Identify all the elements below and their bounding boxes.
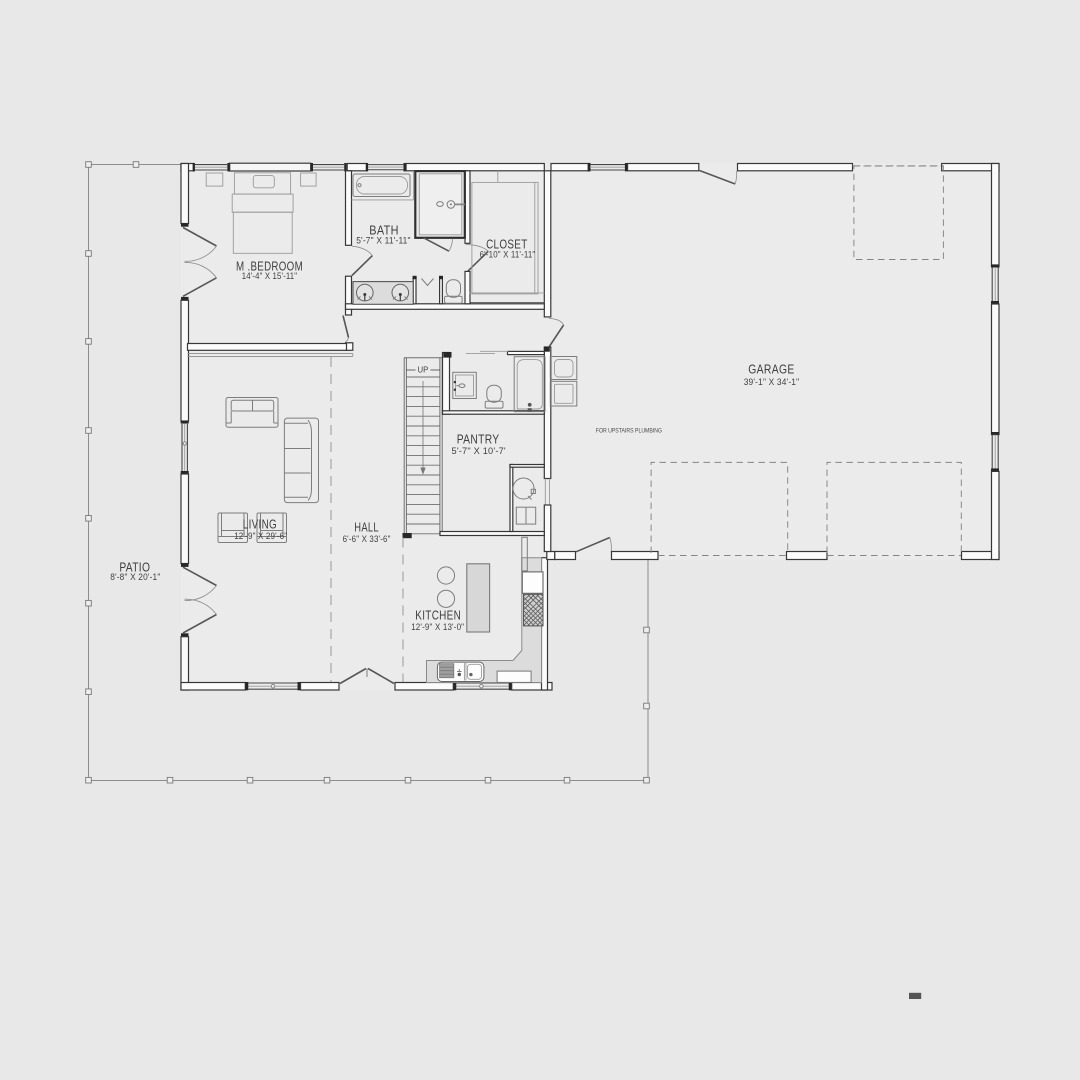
svg-text:12'-9" X 13'-0": 12'-9" X 13'-0" [411,622,464,633]
svg-text:UP: UP [418,365,429,375]
svg-text:12'-9" X 29'-6": 12'-9" X 29'-6" [234,531,287,542]
svg-text:5'-7" X 10'-7': 5'-7" X 10'-7' [452,446,506,457]
svg-text:LIVING: LIVING [243,518,277,532]
svg-text:5'-7" X 11'-11": 5'-7" X 11'-11" [356,236,411,247]
svg-text:14'-4" X 15'-11": 14'-4" X 15'-11" [242,271,297,282]
svg-text:HALL: HALL [354,521,379,535]
svg-text:8'-8" X 20'-1": 8'-8" X 20'-1" [110,572,160,583]
svg-text:KITCHEN: KITCHEN [415,609,461,623]
svg-text:PANTRY: PANTRY [457,433,500,447]
svg-text:GARAGE: GARAGE [748,363,794,377]
svg-text:FOR UPSTAIRS PLUMBING: FOR UPSTAIRS PLUMBING [596,427,662,434]
svg-text:6'-10" X 11'-11": 6'-10" X 11'-11" [480,249,536,260]
svg-text:6'-6" X 33'-6": 6'-6" X 33'-6" [343,534,391,545]
svg-text:39'-1" X 34'-1": 39'-1" X 34'-1" [744,377,800,388]
